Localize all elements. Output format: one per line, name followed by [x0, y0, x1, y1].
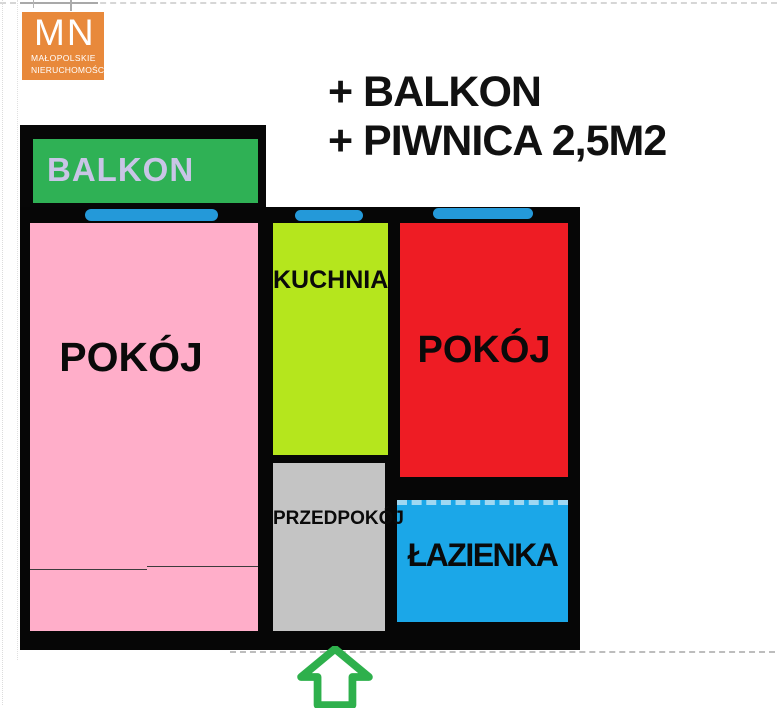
grid-artifact-left [17, 0, 18, 660]
room-przedpokoj [273, 463, 385, 631]
balcony-walls: BALKON [20, 125, 266, 216]
window-marker-icon [433, 208, 533, 219]
floor-plan-canvas: MN MAŁOPOLSKIE NIERUCHOMOŚCI + BALKON + … [0, 0, 777, 708]
extras-balkon: + BALKON [328, 68, 666, 117]
room-przedpokoj-label: PRZEDPOKÓJ [273, 508, 385, 530]
room-kuchnia [273, 223, 388, 455]
floor-seam-line [147, 566, 258, 567]
grid-artifact-top-dark [20, 2, 98, 4]
room-lazienka-label: ŁAZIENKA [397, 537, 568, 574]
room-kuchnia-label: KUCHNIA [273, 266, 388, 295]
logo-line1: MAŁOPOLSKIE [31, 53, 104, 63]
room-balkon: BALKON [33, 139, 258, 203]
grid-artifact-left [2, 0, 3, 705]
floor-seam-line [30, 569, 147, 570]
grid-artifact-tick [70, 0, 72, 11]
room-pokoj-right-label: POKÓJ [400, 329, 568, 372]
entrance-arrow-icon [296, 646, 374, 708]
logo-line2: NIERUCHOMOŚCI [31, 65, 104, 75]
extras-piwnica: + PIWNICA 2,5M2 [328, 117, 666, 166]
window-marker-icon [295, 210, 363, 221]
agency-logo: MN MAŁOPOLSKIE NIERUCHOMOŚCI [22, 12, 104, 80]
window-marker-icon [85, 209, 218, 221]
grid-artifact-top [0, 2, 777, 4]
extras-annotation: + BALKON + PIWNICA 2,5M2 [328, 68, 666, 166]
logo-initials: MN [34, 14, 104, 52]
grid-artifact-tick [33, 0, 34, 8]
room-balkon-label: BALKON [47, 151, 194, 189]
room-pokoj-left-label: POKÓJ [30, 334, 258, 381]
